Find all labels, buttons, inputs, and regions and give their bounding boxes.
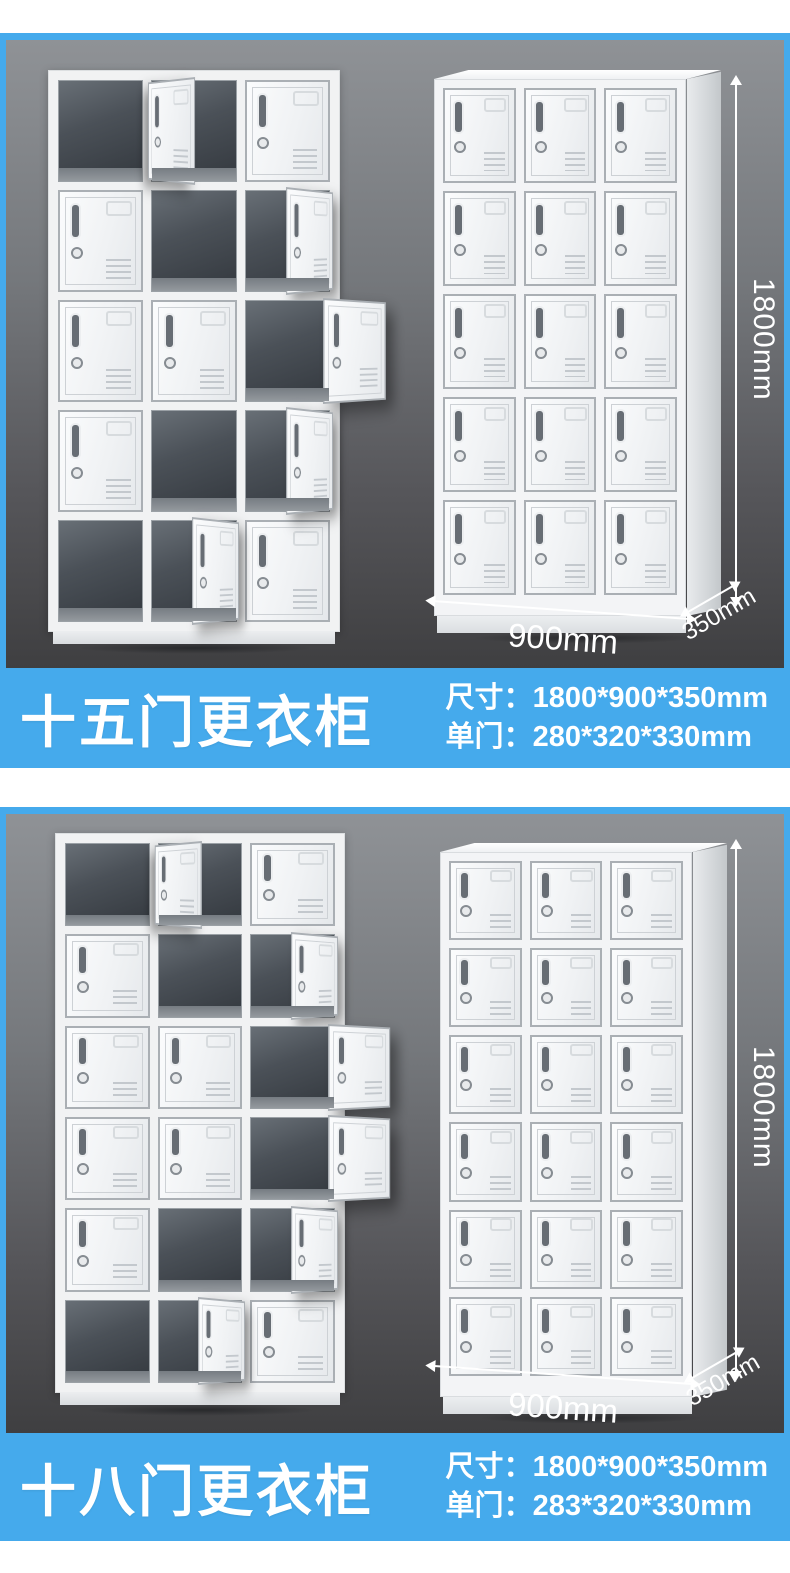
door-vents [298,899,322,916]
locker-cell-ajar-out [245,300,330,402]
door-cardslot [570,957,593,969]
locker-door [58,190,143,292]
door-handle [339,1037,344,1064]
door-cardslot [319,1217,333,1230]
locker-cell-ajar-m [158,843,243,926]
product-page: { "page": {"background": "#ffffff"}, "co… [0,33,790,1573]
door-cardslot [651,1218,674,1230]
closed-locker-photo [434,70,734,668]
locker-door [291,932,338,1020]
locker-door [604,191,677,286]
door-vents [360,368,377,389]
locker-cell-closed [530,1035,603,1114]
locker-door [148,77,195,185]
locker-door [250,1300,335,1383]
door-keyhole [621,1341,633,1353]
door-cardslot [564,201,587,215]
locker-door [158,1026,243,1109]
locker-cell-closed [530,948,603,1027]
locker-cell-closed [530,1210,603,1289]
door-keyhole [293,467,300,479]
locker-door [449,1297,522,1376]
door-handle [72,425,79,457]
door-cardslot [570,1218,593,1230]
locker-door [58,410,143,512]
door-vents [484,461,505,480]
door-cardslot [564,98,587,112]
height-dimension-label: 1800mm [746,278,780,401]
door-cardslot [226,1309,240,1322]
door-vents [571,914,592,930]
locker-door [530,1122,603,1201]
door-vents [645,461,666,480]
locker-side-panel [687,72,721,616]
width-dimension-label: 900mm [507,616,619,662]
door-vents [571,1001,592,1017]
locker-door [151,300,236,402]
door-cardslot [220,531,234,546]
locker-door [610,948,683,1027]
door-cardslot [484,98,507,112]
door-keyhole [263,1346,275,1358]
spec-size-label: 尺寸： [446,682,533,714]
locker-cell-closed [443,88,516,183]
locker-door [250,843,335,926]
door-keyhole [615,244,627,256]
door-cardslot [570,1306,593,1318]
door-vents [484,152,505,171]
door-cardslot [113,1035,139,1048]
locker-top-face [440,843,727,852]
locker-cell-closed [65,1026,150,1109]
locker-cell-closed [610,948,683,1027]
door-handle [455,205,462,235]
door-vents [651,1176,672,1192]
locker-cell-closed [65,1117,150,1200]
locker-door [449,1122,522,1201]
door-keyhole [615,553,627,565]
door-cardslot [298,852,324,865]
door-vents [180,899,194,917]
locker-cell-closed [524,397,597,492]
door-vents [206,1082,230,1099]
locker-cell-closed [151,300,236,402]
door-cardslot [319,943,333,956]
door-keyhole [155,137,161,148]
door-cardslot [298,1309,324,1322]
door-vents [565,564,586,583]
door-keyhole [338,1164,347,1176]
door-keyhole [71,467,83,479]
door-cardslot [484,510,507,524]
door-cardslot [106,421,132,436]
locker-door [610,1297,683,1376]
door-handle [79,1038,86,1064]
door-vents [484,255,505,274]
spec-door-label: 单门： [446,1490,533,1522]
door-handle [339,1129,344,1156]
door-vents [651,1001,672,1017]
door-handle [623,1134,630,1159]
door-handle [72,315,79,347]
door-cardslot [113,943,139,956]
door-cardslot [113,1217,139,1230]
product-title: 十五门更衣柜 [20,678,374,759]
door-vents [490,1263,511,1279]
door-cardslot [651,1306,674,1318]
locker-door [449,948,522,1027]
locker-cell-closed [604,397,677,492]
locker-cell-closed [158,1117,243,1200]
locker-cell-open [58,520,143,622]
door-handle [162,856,166,882]
door-vents [319,990,332,1007]
door-vents [565,461,586,480]
door-vents [645,255,666,274]
locker-door [443,397,516,492]
door-keyhole [333,357,342,369]
locker-door [610,861,683,940]
door-keyhole [621,992,633,1004]
locker-door [443,88,516,183]
locker-cell-closed [449,1035,522,1114]
door-keyhole [164,357,176,369]
locker-door [245,520,330,622]
door-handle [166,315,173,347]
door-vents [490,1350,511,1366]
door-keyhole [161,889,167,900]
locker-door [449,1035,522,1114]
locker-cell-closed [530,1122,603,1201]
door-vents [484,358,505,377]
door-handle [259,535,266,567]
locker-front-face [434,79,686,616]
door-keyhole [77,1072,89,1084]
door-vents [565,358,586,377]
door-vents [113,990,137,1007]
door-keyhole [541,992,553,1004]
door-vents [365,1081,382,1098]
locker-cell-closed [245,520,330,622]
door-keyhole [535,553,547,565]
locker-cell-closed [65,934,150,1017]
locker-cell-open [151,190,236,292]
door-keyhole [460,1254,472,1266]
photo-stage: 1800mm 900mm 350mm [6,40,784,668]
door-handle [334,314,339,347]
door-vents [490,914,511,930]
door-vents [490,1001,511,1017]
locker-door [155,841,202,929]
door-handle [172,1129,179,1155]
door-vents [490,1088,511,1104]
locker-door [65,1208,150,1291]
door-cardslot [490,1131,513,1143]
door-keyhole [293,247,300,259]
locker-door [524,397,597,492]
door-keyhole [621,1167,633,1179]
door-vents [106,259,130,280]
photo-stage: 1800mm 900mm 350mm [6,814,784,1433]
locker-cell-closed [443,191,516,286]
door-handle [79,1221,86,1247]
door-keyhole [71,357,83,369]
door-keyhole [257,577,269,589]
locker-door [65,1026,150,1109]
door-cardslot [293,91,319,106]
door-cardslot [484,201,507,215]
door-keyhole [615,141,627,153]
door-cardslot [200,311,226,326]
locker-door [604,294,677,389]
door-handle [455,308,462,338]
door-vents [571,1088,592,1104]
door-keyhole [621,905,633,917]
door-handle [542,960,549,985]
door-handle [79,947,86,973]
door-vents [314,258,327,279]
door-keyhole [535,244,547,256]
door-keyhole [299,981,306,993]
door-cardslot [651,1044,674,1056]
locker-door [604,397,677,492]
locker-door [443,294,516,389]
door-keyhole [263,889,275,901]
door-vents [565,255,586,274]
door-keyhole [535,347,547,359]
locker-cell-ajar [158,1300,243,1383]
door-keyhole [615,347,627,359]
door-vents [651,1088,672,1104]
spec-door-row: 单门：280*320*330mm [446,718,768,757]
door-handle [536,308,543,338]
door-keyhole [541,1341,553,1353]
door-vents [651,1350,672,1366]
locker-cell-closed [449,948,522,1027]
spec-size-label: 尺寸： [446,1451,533,1483]
spec-door-label: 单门： [446,721,533,753]
locker-cell-closed [58,410,143,512]
door-handle [259,95,266,127]
door-handle [623,1221,630,1246]
spec-size-row: 尺寸：1800*900*350mm [446,679,768,718]
locker-door [286,407,333,515]
door-cardslot [651,957,674,969]
locker-door [530,861,603,940]
door-handle [542,1221,549,1246]
locker-door [610,1122,683,1201]
locker-cell-closed [158,1026,243,1109]
product-section-15-door: 1800mm 900mm 350mm 十五门更衣柜 尺寸：1800*900*35… [0,33,790,768]
door-handle [536,102,543,132]
door-cardslot [314,421,328,436]
door-vents [113,1082,137,1099]
locker-cell-closed [604,500,677,595]
locker-cell-closed [449,1297,522,1376]
door-handle [461,1134,468,1159]
locker-cell-open [158,934,243,1017]
locker-door [443,191,516,286]
door-vents [106,369,130,390]
locker-cell-closed [245,80,330,182]
locker-cell-closed [250,843,335,926]
door-keyhole [541,1254,553,1266]
locker-cell-closed [530,1297,603,1376]
door-vents [226,1355,239,1372]
door-handle [156,95,160,127]
locker-cell-closed [524,88,597,183]
spec-size-row: 尺寸：1800*900*350mm [446,1448,768,1487]
door-keyhole [460,1341,472,1353]
door-cardslot [484,304,507,318]
door-keyhole [454,244,466,256]
door-vents [490,1176,511,1192]
locker-door [524,191,597,286]
door-vents [571,1350,592,1366]
door-cardslot [113,1126,139,1139]
door-handle [617,514,624,544]
door-handle [623,960,630,985]
door-handle [461,1309,468,1334]
door-vents [645,358,666,377]
spec-door-row: 单门：283*320*330mm [446,1487,768,1526]
door-keyhole [541,1167,553,1179]
locker-door [443,500,516,595]
door-keyhole [200,577,207,589]
product-specs: 尺寸：1800*900*350mm 单门：283*320*330mm [446,1448,768,1526]
locker-cell-closed [58,300,143,402]
locker-door [65,1117,150,1200]
door-vents [206,1173,230,1190]
door-cardslot [570,1044,593,1056]
door-keyhole [257,137,269,149]
door-cardslot [106,201,132,216]
door-handle [623,1309,630,1334]
door-handle [536,411,543,441]
door-vents [113,1264,137,1281]
locker-cell-closed [443,294,516,389]
door-keyhole [615,450,627,462]
door-keyhole [454,553,466,565]
locker-cell-closed [524,294,597,389]
door-handle [461,960,468,985]
door-handle [172,1038,179,1064]
locker-front-face [440,852,692,1397]
door-vents [645,152,666,171]
door-handle [294,423,298,457]
locker-door [65,934,150,1017]
door-keyhole [535,450,547,462]
door-keyhole [460,905,472,917]
door-keyhole [460,1167,472,1179]
locker-cell-ajar [151,520,236,622]
closed-locker-photo [440,843,740,1433]
door-handle [461,1047,468,1072]
door-handle [207,1311,211,1338]
door-cardslot [490,870,513,882]
product-banner: 十五门更衣柜 尺寸：1800*900*350mm 单门：280*320*330m… [0,668,790,768]
door-vents [174,149,188,171]
locker-door [198,1297,245,1385]
locker-door [449,861,522,940]
locker-door [524,294,597,389]
door-cardslot [651,870,674,882]
locker-cell-closed [250,1300,335,1383]
spec-size-value: 1800*900*350mm [533,1451,768,1483]
height-dimension-arrow [735,84,737,598]
door-vents [571,1263,592,1279]
door-cardslot [365,1126,383,1139]
door-cardslot [490,957,513,969]
door-cardslot [360,311,378,326]
door-handle [72,205,79,237]
door-vents [293,589,317,610]
door-cardslot [180,851,195,865]
door-handle [455,411,462,441]
locker-cell-ajar [245,190,330,292]
locker-cell-closed [443,500,516,595]
locker-cell-closed [604,294,677,389]
door-keyhole [77,981,89,993]
door-handle [461,873,468,898]
locker-door [604,500,677,595]
door-handle [623,873,630,898]
locker-cell-closed [524,500,597,595]
door-keyhole [535,141,547,153]
locker-door [604,88,677,183]
door-handle [617,411,624,441]
locker-door [328,1024,390,1111]
door-vents [645,564,666,583]
locker-cell-ajar [250,1208,335,1291]
locker-cell-open [65,1300,150,1383]
door-keyhole [454,347,466,359]
locker-door [530,1210,603,1289]
door-keyhole [71,247,83,259]
product-banner: 十八门更衣柜 尺寸：1800*900*350mm 单门：283*320*330m… [0,1433,790,1541]
locker-door [524,88,597,183]
door-keyhole [206,1346,213,1358]
door-handle [542,1309,549,1334]
door-keyhole [77,1255,89,1267]
door-keyhole [170,1163,182,1175]
locker-cell-closed [58,190,143,292]
door-keyhole [541,1079,553,1091]
door-vents [651,1263,672,1279]
door-cardslot [490,1218,513,1230]
locker-cell-open [58,80,143,182]
locker-door [58,300,143,402]
locker-door [328,1115,390,1202]
door-handle [299,1219,303,1246]
door-handle [264,855,271,881]
locker-door [530,948,603,1027]
locker-cell-open [151,410,236,512]
locker-side-panel [693,845,727,1397]
door-handle [79,1129,86,1155]
door-vents [106,479,130,500]
door-handle [542,873,549,898]
locker-cell-closed [610,1035,683,1114]
locker-cell-ajar [250,934,335,1017]
door-vents [365,1173,382,1190]
door-handle [542,1047,549,1072]
door-cardslot [570,1131,593,1143]
door-handle [536,514,543,544]
door-keyhole [621,1254,633,1266]
locker-cell-closed [449,1210,522,1289]
door-vents [113,1173,137,1190]
